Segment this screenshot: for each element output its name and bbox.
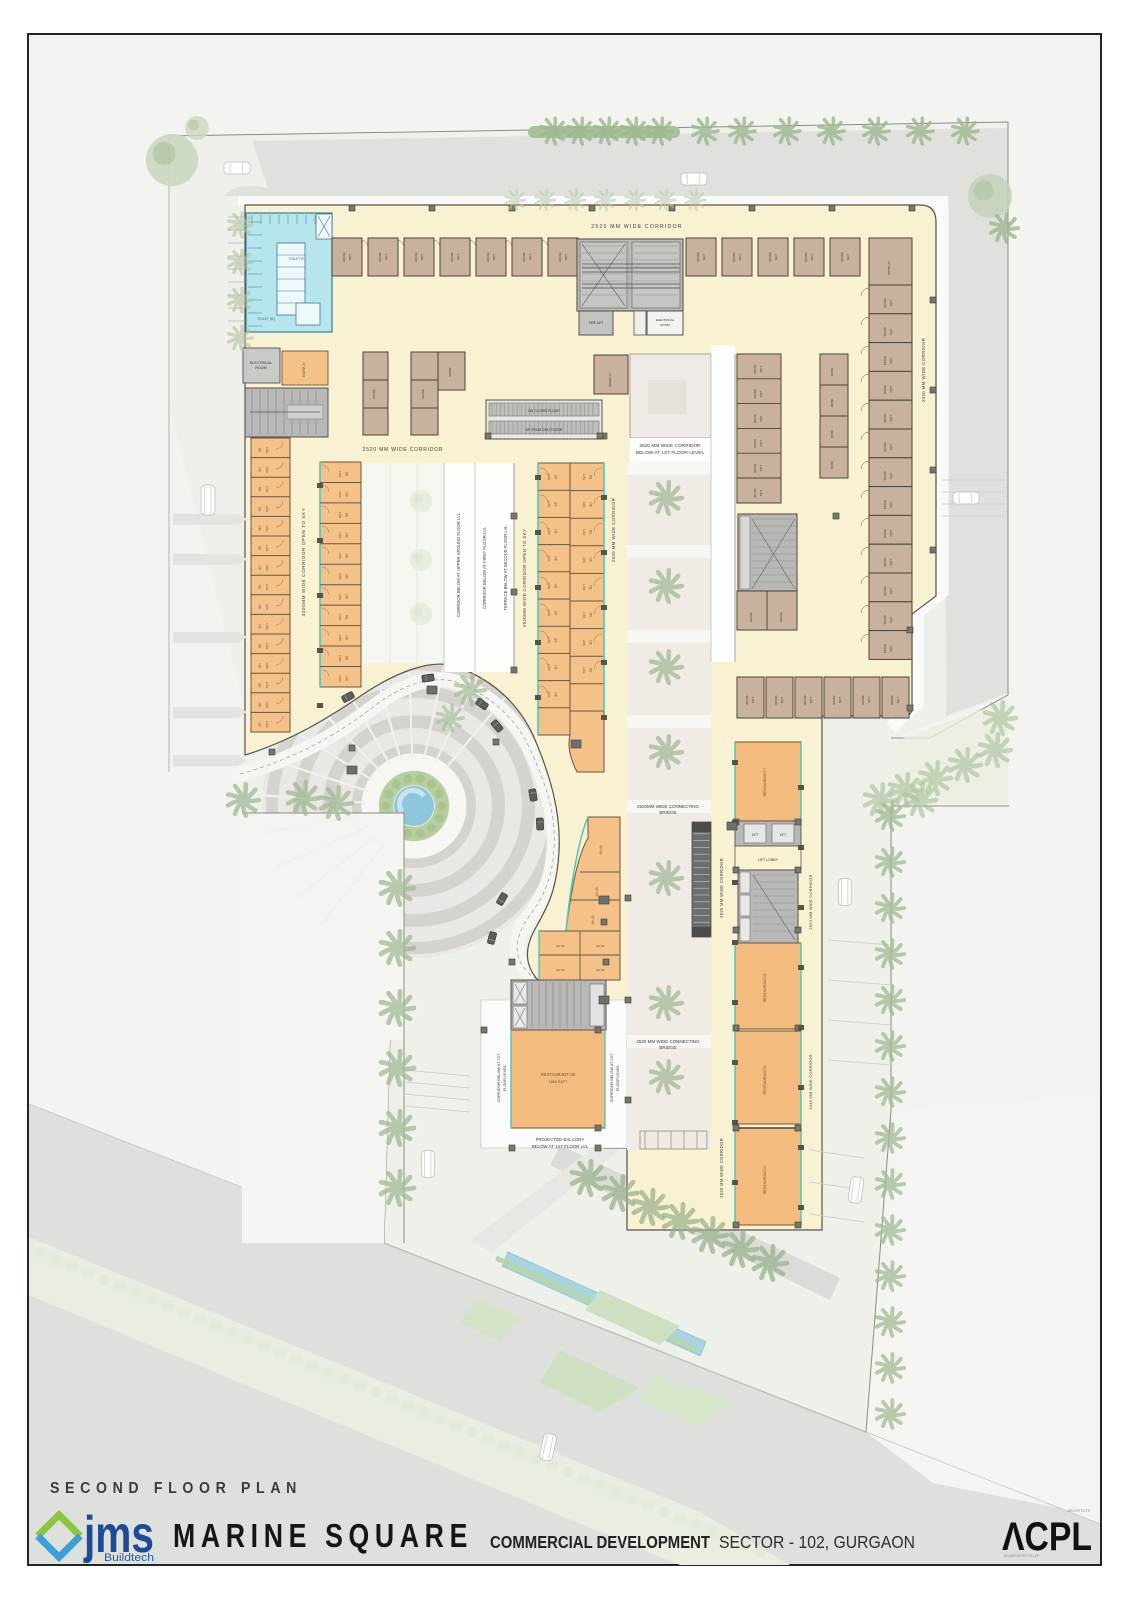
svg-text:LIFT: LIFT [752,833,759,837]
svg-text:SQFT: SQFT [739,253,742,260]
svg-text:SQFT: SQFT [583,528,586,535]
svg-text:SQFT: SQFT [890,386,893,393]
svg-text:KIOSK: KIOSK [883,586,887,595]
svg-text:SH: SH [345,532,349,537]
svg-text:SQFT: SQFT [897,696,900,703]
svg-text:KIOSK: KIOSK [883,298,887,307]
svg-text:ARCHITECTS: ARCHITECTS [1068,1509,1091,1513]
svg-text:SH: SH [345,635,349,640]
svg-text:KIOSK: KIOSK [522,252,526,261]
svg-text:KIOSK-14: KIOSK-14 [608,373,612,387]
svg-text:ELECTRICAL: ELECTRICAL [656,318,675,322]
svg-text:SQFT: SQFT [339,593,342,600]
svg-text:SH: SH [345,492,349,497]
svg-text:TOILET (M): TOILET (M) [257,317,275,321]
svg-text:KIOSK: KIOSK [753,488,757,497]
svg-text:LIFT: LIFT [780,833,787,837]
svg-text:CORRIDOR BELOW AT 1ST: CORRIDOR BELOW AT 1ST [610,1053,614,1102]
svg-text:SH: SH [258,565,262,570]
svg-text:SQFT: SQFT [493,253,496,260]
svg-text:SQFT: SQFT [266,642,269,649]
svg-text:SQFT: SQFT [339,532,342,539]
svg-text:SQFT: SQFT [839,696,842,703]
svg-text:KIOSK: KIOSK [378,252,382,261]
svg-text:KIOSK-9: KIOSK-9 [302,363,306,376]
svg-text:2520 MM WIDE CORRIDOR: 2520 MM WIDE CORRIDOR [611,498,616,563]
svg-text:KIOSK: KIOSK [774,695,778,704]
svg-text:SH: SH [554,583,558,588]
svg-text:SQFT: SQFT [266,721,269,728]
svg-text:SH: SH [345,573,349,578]
svg-text:KIOSK: KIOSK [861,695,865,704]
svg-text:UP FROM GRD FLOOR: UP FROM GRD FLOOR [526,428,563,432]
svg-text:KIOSK: KIOSK [883,644,887,653]
svg-text:2520MM WIDE CORRIDOR OPEN TO S: 2520MM WIDE CORRIDOR OPEN TO SKY [522,529,527,628]
svg-text:PROJECTED BALCONY: PROJECTED BALCONY [536,1137,585,1142]
svg-text:SQFT: SQFT [583,611,586,618]
svg-text:2520 MM WIDE CORRIDOR: 2520 MM WIDE CORRIDOR [363,447,444,453]
svg-text:KIOSK: KIOSK [883,385,887,394]
svg-text:KIOSK: KIOSK [883,356,887,365]
svg-text:SQFT: SQFT [266,603,269,610]
svg-text:SQFT: SQFT [266,525,269,532]
svg-text:SH: SH [554,664,558,669]
svg-text:TOILET (F): TOILET (F) [288,257,305,261]
svg-text:KIOSK: KIOSK [753,464,757,473]
svg-text:SQFT: SQFT [890,414,893,421]
svg-text:SQFT: SQFT [349,253,352,260]
svg-text:SH-40: SH-40 [596,968,605,972]
svg-text:SH: SH [345,676,349,681]
svg-text:SQFT: SQFT [339,511,342,518]
svg-text:KIOSK: KIOSK [372,389,376,398]
svg-text:SECTOR - 102, GURGAON: SECTOR - 102, GURGAON [719,1532,915,1552]
svg-text:SH: SH [258,584,262,589]
svg-text:SH: SH [554,610,558,615]
svg-text:SH: SH [554,501,558,506]
svg-text:BELOW AT 1ST FLOOR LVL: BELOW AT 1ST FLOOR LVL [532,1144,589,1149]
svg-text:CORRIDOR BELOW AT UPPER GROUND: CORRIDOR BELOW AT UPPER GROUND FLOOR LVL [456,512,461,617]
svg-text:SQFT: SQFT [890,501,893,508]
svg-text:FLOOR LEVEL: FLOOR LEVEL [616,1065,620,1091]
svg-text:SQFT: SQFT [583,473,586,480]
svg-text:SQFT: SQFT [775,253,778,260]
svg-text:SQFT: SQFT [548,664,551,671]
svg-text:KIOSK: KIOSK [832,695,836,704]
svg-text:2520 MM WIDE CORRIDOR: 2520 MM WIDE CORRIDOR [719,1138,724,1198]
svg-text:SH: SH [258,721,262,726]
svg-text:SQFT: SQFT [890,645,893,652]
svg-text:SH-39: SH-39 [556,968,565,972]
svg-text:CORRIDOR BELOW AT FIRST FLOOR: CORRIDOR BELOW AT FIRST FLOOR LVL [482,526,487,609]
svg-text:SH: SH [589,474,593,479]
svg-text:ROOM: ROOM [660,323,670,327]
svg-text:SQFT: SQFT [703,253,706,260]
svg-text:KIOSK: KIOSK [803,695,807,704]
svg-text:SQFT: SQFT [890,299,893,306]
svg-text:SH: SH [258,506,262,511]
svg-text:SQFT: SQFT [752,696,755,703]
svg-text:KIOSK: KIOSK [753,364,757,373]
svg-text:SQFT: SQFT [548,609,551,616]
svg-text:SH: SH [345,512,349,517]
svg-text:KIOSK: KIOSK [486,252,490,261]
svg-text:3300MM WIDE CORRIDOR OPEN TO S: 3300MM WIDE CORRIDOR OPEN TO SKY [301,508,306,617]
svg-text:SQFT: SQFT [339,675,342,682]
svg-text:SQFT: SQFT [890,472,893,479]
svg-text:SH: SH [258,604,262,609]
svg-text:FLOOR LEVEL: FLOOR LEVEL [503,1065,507,1091]
svg-text:SQFT: SQFT [266,505,269,512]
svg-text:CORRIDOR BELOW AT 1ST: CORRIDOR BELOW AT 1ST [497,1053,501,1102]
svg-text:KIOSK: KIOSK [753,414,757,423]
svg-text:SQFT: SQFT [583,639,586,646]
svg-text:ΛCPL: ΛCPL [1002,1515,1092,1559]
svg-text:SH: SH [258,682,262,687]
svg-text:KIOSK: KIOSK [883,558,887,567]
svg-text:SQFT: SQFT [339,654,342,661]
svg-text:SQFT: SQFT [421,253,424,260]
svg-text:SQFT: SQFT [339,634,342,641]
svg-text:SQFT: SQFT [339,470,342,477]
svg-text:SH-41: SH-41 [596,944,605,948]
svg-text:SH: SH [345,655,349,660]
svg-text:SQFT: SQFT [890,357,893,364]
svg-text:SQFT: SQFT [890,443,893,450]
svg-text:BELOW AT 1ST FLOOR LEVEL: BELOW AT 1ST FLOOR LEVEL [636,450,705,456]
svg-text:SH: SH [258,663,262,668]
svg-text:SQFT: SQFT [548,473,551,480]
svg-text:SQFT: SQFT [266,662,269,669]
svg-text:SQFT: SQFT [583,584,586,591]
svg-text:KIOSK: KIOSK [883,615,887,624]
svg-text:SQFT: SQFT [266,564,269,571]
svg-text:KIOSK: KIOSK [883,327,887,336]
svg-text:SQFT: SQFT [266,466,269,473]
svg-text:AD ARCHITECTS LLP: AD ARCHITECTS LLP [1004,1554,1040,1558]
svg-text:SQFT: SQFT [760,365,763,372]
svg-text:SQFT: SQFT [781,696,784,703]
svg-text:KIOSK: KIOSK [883,471,887,480]
svg-text:2520 MM WIDE CORRIDOR: 2520 MM WIDE CORRIDOR [808,874,813,929]
svg-text:MARINE SQUARE: MARINE SQUARE [173,1517,473,1554]
svg-text:SQFT: SQFT [548,555,551,562]
svg-text:SQFT: SQFT [266,544,269,551]
svg-text:RESTAURANT-3: RESTAURANT-3 [763,1166,767,1195]
svg-text:SQFT: SQFT [339,552,342,559]
svg-text:SQFT: SQFT [457,253,460,260]
svg-text:2520 MM WIDE CONNECTING: 2520 MM WIDE CONNECTING [636,1039,700,1044]
svg-text:SH-44: SH-44 [599,845,603,854]
svg-text:SH: SH [589,584,593,589]
svg-text:SH: SH [345,471,349,476]
svg-text:2520 MM WIDE CORRIDOR: 2520 MM WIDE CORRIDOR [639,443,701,449]
svg-text:LIFT LOBBY: LIFT LOBBY [758,858,779,862]
svg-text:SQFT: SQFT [890,558,893,565]
svg-text:KIOSK: KIOSK [696,252,700,261]
svg-text:SQFT: SQFT [760,415,763,422]
svg-text:KIOSK: KIOSK [448,367,452,376]
svg-text:DN TO GRD FLOOR: DN TO GRD FLOOR [528,409,560,413]
svg-text:SH: SH [345,594,349,599]
svg-text:SH: SH [345,553,349,558]
svg-text:SH-43: SH-43 [595,887,599,896]
svg-text:KIOSK: KIOSK [558,252,562,261]
svg-text:SH-42: SH-42 [591,915,595,924]
svg-text:SQFT: SQFT [266,446,269,453]
svg-text:SH: SH [554,692,558,697]
svg-text:KIOSK: KIOSK [830,461,834,470]
svg-text:SH: SH [589,612,593,617]
svg-text:SQFT: SQFT [548,528,551,535]
svg-text:SQFT: SQFT [810,696,813,703]
svg-text:SQFT: SQFT [583,666,586,673]
svg-text:SQFT: SQFT [847,253,850,260]
svg-text:SH: SH [554,528,558,533]
svg-text:KIOSK: KIOSK [753,389,757,398]
svg-text:KIOSK: KIOSK [779,612,783,621]
svg-text:SQFT: SQFT [266,701,269,708]
svg-text:SQFT: SQFT [890,587,893,594]
svg-text:SQFT: SQFT [760,440,763,447]
svg-text:SQFT: SQFT [890,530,893,537]
svg-text:SQFT: SQFT [760,390,763,397]
svg-text:KIOSK: KIOSK [749,612,753,621]
svg-text:KIOSK: KIOSK [883,500,887,509]
svg-text:2520 MM WIDE CORRIDOR: 2520 MM WIDE CORRIDOR [719,858,724,918]
svg-text:KIOSK: KIOSK [830,399,834,408]
svg-text:KIOSK: KIOSK [450,252,454,261]
svg-text:SH: SH [258,447,262,452]
svg-text:SQFT: SQFT [760,489,763,496]
svg-text:SQFT: SQFT [339,491,342,498]
svg-text:SQFT: SQFT [339,613,342,620]
svg-text:SQFT: SQFT [266,485,269,492]
svg-text:FIRE LIFT: FIRE LIFT [589,321,604,325]
svg-text:SQFT: SQFT [565,253,568,260]
svg-text:2520 MM WIDE CORRIDOR: 2520 MM WIDE CORRIDOR [591,224,683,230]
svg-text:SQFT: SQFT [266,681,269,688]
svg-text:KIOSK: KIOSK [830,430,834,439]
svg-text:SQFT: SQFT [548,500,551,507]
svg-text:SQFT: SQFT [339,573,342,580]
svg-text:RESTAURANT-1B: RESTAURANT-1B [541,1072,576,1077]
svg-text:RESTAURANT-7: RESTAURANT-7 [763,768,767,797]
svg-text:KIOSK-27: KIOSK-27 [887,261,891,275]
svg-text:SH: SH [554,637,558,642]
svg-text:KIOSK: KIOSK [883,414,887,423]
svg-text:SH: SH [258,486,262,491]
svg-text:KIOSK: KIOSK [732,252,736,261]
svg-text:SH: SH [589,640,593,645]
svg-text:ELECTRICAL: ELECTRICAL [250,361,272,365]
svg-text:SH: SH [554,556,558,561]
svg-text:SQFT: SQFT [548,636,551,643]
svg-text:SQFT: SQFT [890,328,893,335]
svg-text:1045 MM WIDE CORRIDOR: 1045 MM WIDE CORRIDOR [808,1054,813,1109]
svg-text:KIOSK: KIOSK [414,252,418,261]
svg-text:2520MM WIDE CONNECTING: 2520MM WIDE CONNECTING [637,804,700,809]
svg-text:ROOM: ROOM [255,366,266,370]
svg-text:KIOSK: KIOSK [883,442,887,451]
svg-text:KIOSK: KIOSK [890,695,894,704]
svg-text:BRIDGE: BRIDGE [659,810,676,815]
svg-text:SH-38: SH-38 [556,944,565,948]
svg-text:SH: SH [554,474,558,479]
svg-text:SH: SH [258,467,262,472]
svg-text:SH: SH [589,529,593,534]
svg-text:SH: SH [345,614,349,619]
svg-text:SH: SH [258,525,262,530]
svg-text:RESTAURANT-5: RESTAURANT-5 [763,1066,767,1095]
svg-text:KIOSK: KIOSK [804,252,808,261]
svg-text:SQFT: SQFT [266,583,269,590]
svg-text:BRIDGE: BRIDGE [659,1045,676,1050]
svg-text:KIOSK: KIOSK [883,529,887,538]
svg-text:SECOND FLOOR PLAN: SECOND FLOOR PLAN [50,1480,302,1497]
svg-text:SQFT: SQFT [529,253,532,260]
svg-text:SQFT: SQFT [811,253,814,260]
svg-text:RESTAURANT-6: RESTAURANT-6 [763,974,767,1003]
svg-text:SQFT: SQFT [583,501,586,508]
svg-text:SQFT: SQFT [583,556,586,563]
svg-text:SQFT: SQFT [385,253,388,260]
svg-text:SH: SH [589,667,593,672]
svg-text:KIOSK: KIOSK [768,252,772,261]
svg-text:SH: SH [258,623,262,628]
svg-text:SH: SH [258,643,262,648]
svg-text:KIOSK: KIOSK [342,252,346,261]
svg-text:KIOSK: KIOSK [830,368,834,377]
svg-text:SH: SH [589,502,593,507]
svg-text:SH: SH [258,545,262,550]
svg-text:TERRACE BELOW AT SECOND FLOOR: TERRACE BELOW AT SECOND FLOOR LVL [503,525,508,611]
svg-text:1806 SQFT: 1806 SQFT [549,1080,568,1084]
svg-text:Buildtech: Buildtech [104,1552,154,1564]
svg-text:KIOSK: KIOSK [753,439,757,448]
svg-text:SQFT: SQFT [548,582,551,589]
svg-text:SH: SH [589,557,593,562]
svg-text:SQFT: SQFT [266,623,269,630]
svg-text:KIOSK: KIOSK [745,695,749,704]
svg-text:SQFT: SQFT [868,696,871,703]
svg-text:COMMERCIAL DEVELOPMENT: COMMERCIAL DEVELOPMENT [490,1532,710,1552]
svg-text:SQFT: SQFT [890,616,893,623]
svg-text:SQFT: SQFT [760,464,763,471]
svg-text:SH: SH [258,702,262,707]
svg-text:2520 MM WIDE CORRIDOR: 2520 MM WIDE CORRIDOR [921,338,926,403]
svg-text:KIOSK: KIOSK [421,389,425,398]
svg-text:KIOSK: KIOSK [840,252,844,261]
svg-text:SQFT: SQFT [548,691,551,698]
